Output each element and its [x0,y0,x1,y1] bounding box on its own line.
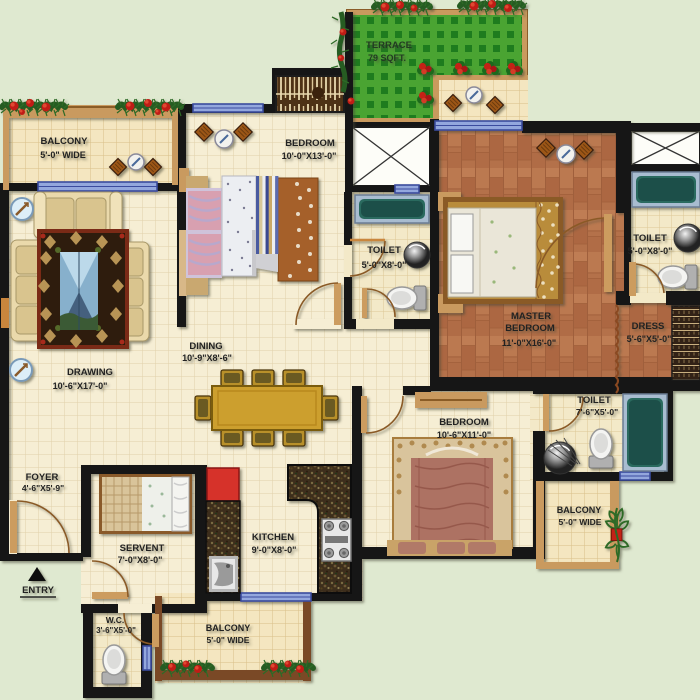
svg-text:BEDROOM: BEDROOM [285,138,335,149]
svg-text:ENTRY: ENTRY [22,585,55,596]
svg-text:10'-6"X17'-0": 10'-6"X17'-0" [53,381,108,391]
svg-text:TOILET: TOILET [367,245,401,256]
svg-text:DINING: DINING [189,341,222,352]
svg-text:79 SQFT.: 79 SQFT. [368,53,406,63]
svg-text:9'-0"X8'-0": 9'-0"X8'-0" [252,545,297,555]
svg-text:TOILET: TOILET [633,233,667,244]
svg-text:TOILET: TOILET [577,395,611,406]
svg-text:BALCONY: BALCONY [41,136,89,147]
svg-text:5'-6"X5'-0": 5'-6"X5'-0" [627,334,672,344]
svg-text:5'-0" WIDE: 5'-0" WIDE [40,150,85,160]
svg-text:BALCONY: BALCONY [206,623,251,633]
svg-text:3'-6"X5'-0": 3'-6"X5'-0" [96,626,136,635]
svg-text:MASTER: MASTER [511,311,551,322]
svg-text:FOYER: FOYER [26,472,59,483]
svg-text:W.C.: W.C. [106,615,124,625]
svg-text:TERRACE: TERRACE [366,40,412,51]
svg-text:SERVENT: SERVENT [120,543,165,554]
svg-text:11'-0"X16'-0": 11'-0"X16'-0" [502,338,556,348]
svg-text:5'-0" WIDE: 5'-0" WIDE [559,517,602,527]
svg-text:5'-0"X8'-0": 5'-0"X8'-0" [628,246,673,256]
svg-text:BEDROOM: BEDROOM [505,323,555,334]
svg-text:KITCHEN: KITCHEN [252,532,294,543]
svg-text:10'-9"X8'-6": 10'-9"X8'-6" [182,353,232,363]
svg-text:7'-0"X8'-0": 7'-0"X8'-0" [118,555,163,565]
svg-text:5'-0"X8'-0": 5'-0"X8'-0" [362,260,407,270]
svg-text:BEDROOM: BEDROOM [439,417,489,428]
svg-text:7'-6"X5'-0": 7'-6"X5'-0" [576,407,618,417]
svg-text:5'-0" WIDE: 5'-0" WIDE [207,635,250,645]
svg-text:DRAWING: DRAWING [67,367,113,378]
svg-text:BALCONY: BALCONY [557,505,602,515]
svg-text:10'-6"X11'-0": 10'-6"X11'-0" [437,430,491,440]
svg-text:4'-6"X5'-9": 4'-6"X5'-9" [22,483,64,493]
svg-text:10'-0"X13'-0": 10'-0"X13'-0" [282,151,337,161]
svg-text:DRESS: DRESS [632,321,665,332]
